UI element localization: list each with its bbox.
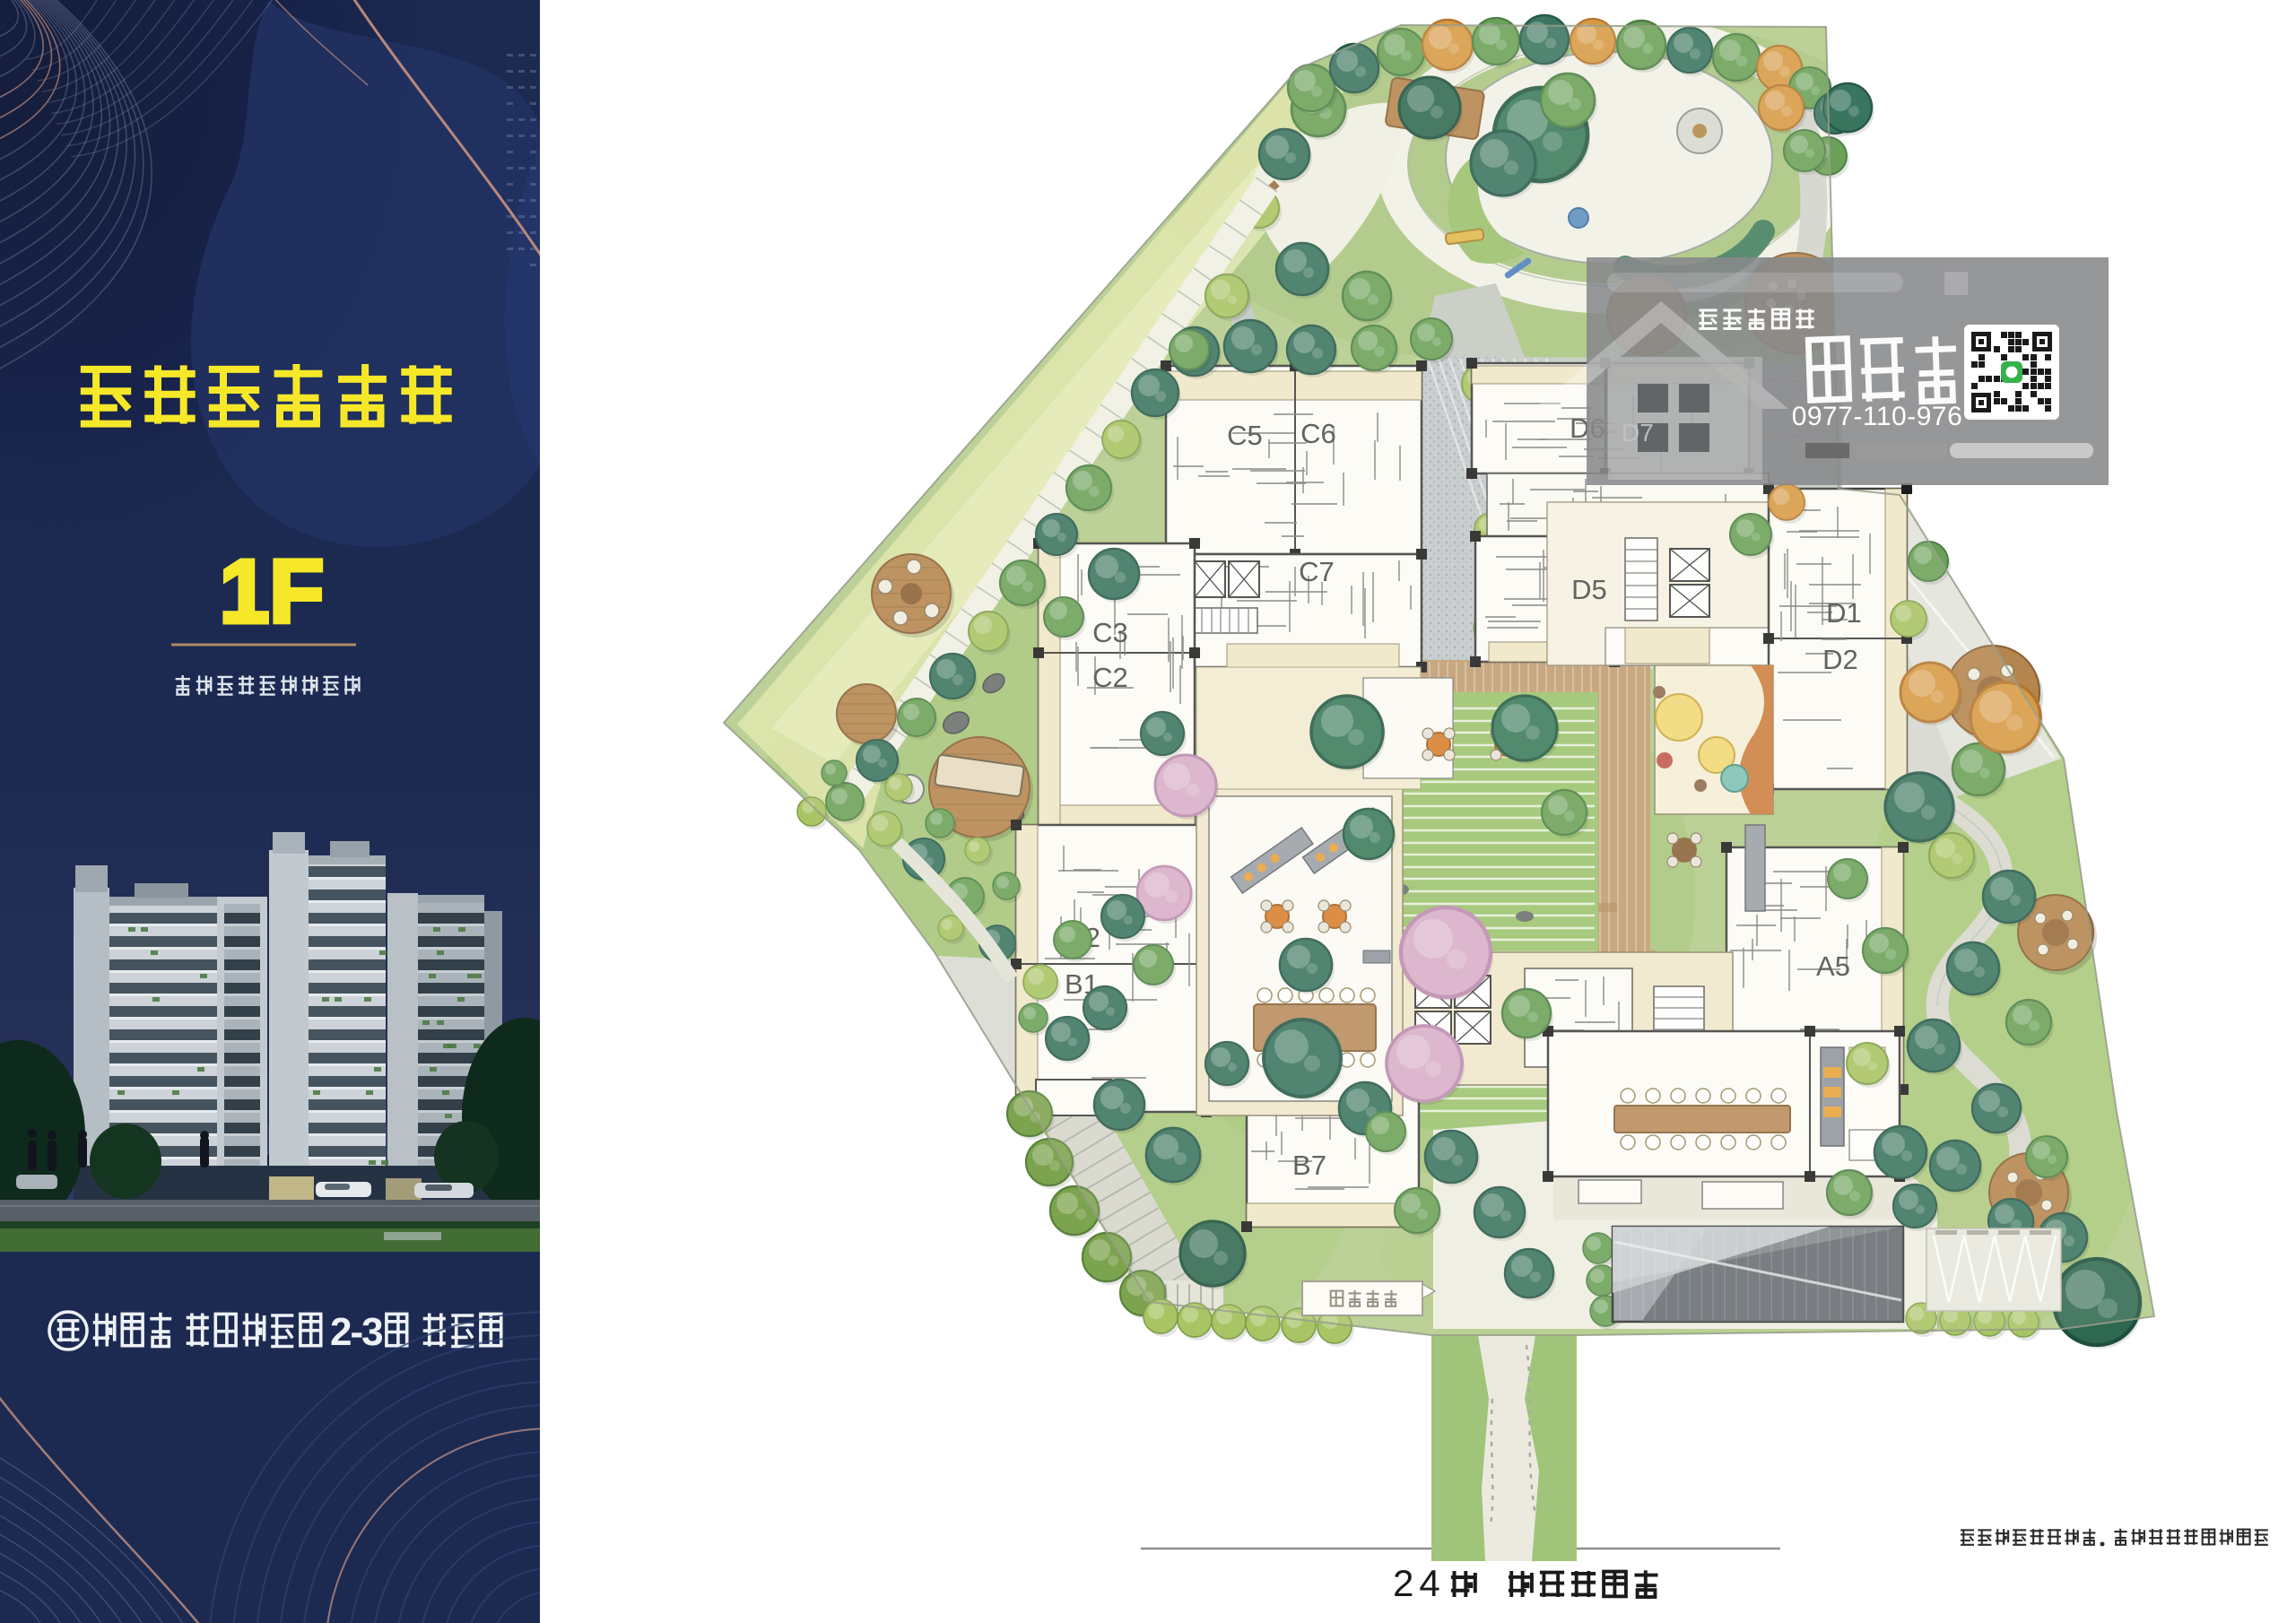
svg-text:24: 24 <box>1393 1562 1446 1604</box>
svg-text:D7: D7 <box>1622 419 1654 447</box>
svg-text:0977-110-976: 0977-110-976 <box>1792 402 1963 431</box>
